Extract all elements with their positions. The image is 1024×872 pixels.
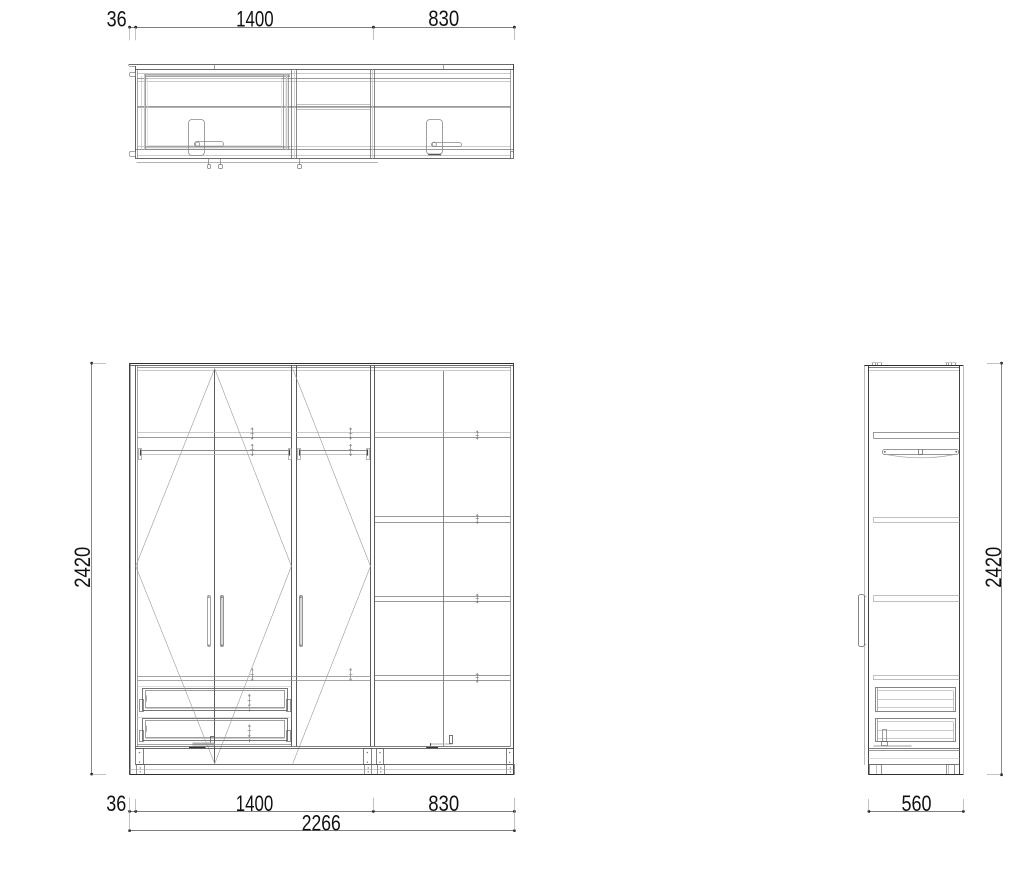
svg-text:830: 830 [428, 791, 459, 816]
svg-text:36: 36 [107, 7, 127, 32]
svg-text:36: 36 [106, 791, 126, 816]
svg-text:830: 830 [428, 6, 459, 31]
svg-text:1400: 1400 [236, 7, 274, 32]
svg-text:2266: 2266 [302, 810, 341, 835]
svg-text:2420: 2420 [981, 547, 1006, 588]
svg-text:560: 560 [902, 791, 932, 816]
svg-text:2420: 2420 [70, 547, 95, 588]
svg-text:1400: 1400 [236, 791, 274, 816]
